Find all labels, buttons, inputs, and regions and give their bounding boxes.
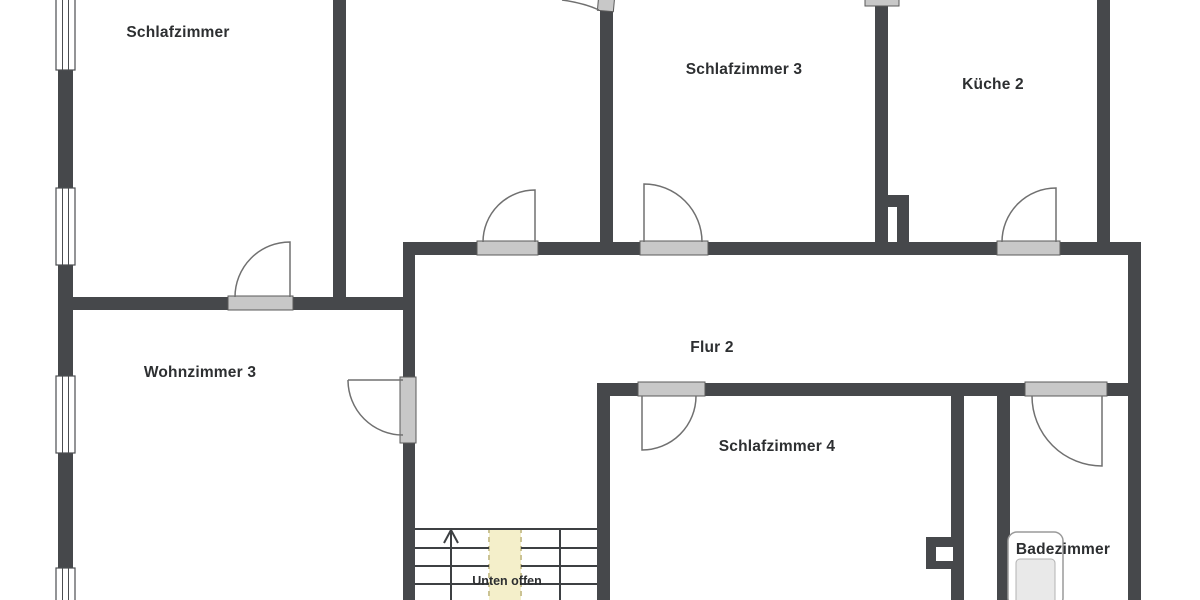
door-swing-icon <box>348 380 403 435</box>
wall-segment <box>58 297 228 310</box>
wall-segment <box>333 0 346 310</box>
door-threshold <box>638 382 705 396</box>
wall-segment <box>597 383 610 600</box>
room-label-flur-2: Flur 2 <box>690 339 733 357</box>
window-symbol <box>56 568 75 600</box>
door-swing-icon <box>483 190 535 242</box>
door-swing-icon <box>235 242 290 297</box>
wall-segment <box>951 395 964 600</box>
wall-segment <box>875 195 909 207</box>
room-label-wohnzimmer-3: Wohnzimmer 3 <box>144 364 256 382</box>
wall-segment <box>708 242 997 255</box>
door-swing-icon <box>562 0 599 10</box>
wall-segment <box>1097 0 1110 253</box>
wall-segment <box>705 383 1025 396</box>
door-swing-icon <box>642 396 696 450</box>
door-threshold <box>477 241 538 255</box>
staircase-symbol <box>415 528 597 600</box>
stair-opening <box>489 528 521 600</box>
room-label-badezimmer: Badezimmer <box>1016 541 1110 559</box>
wall-segment <box>597 383 638 396</box>
door-threshold <box>640 241 708 255</box>
door-thresholds <box>228 0 1107 443</box>
wall-segment <box>1128 243 1141 600</box>
wall-segment <box>293 297 415 310</box>
door-threshold <box>400 377 416 443</box>
wall-segment <box>538 242 640 255</box>
stairwell-label: Unten offen <box>472 574 541 588</box>
chimney-symbol <box>926 537 964 569</box>
room-label-schlafzimmer-2: Schlafzimmer 2 <box>366 0 483 5</box>
room-label-schlafzimmer-3: Schlafzimmer 3 <box>686 61 803 79</box>
floor-plan: Schlafzimmer Schlafzimmer 2 Schlafzimmer… <box>0 0 1200 600</box>
room-label-kueche-2: Küche 2 <box>962 76 1024 94</box>
window-symbol <box>56 0 75 70</box>
window-symbol <box>56 188 75 265</box>
wall-segment <box>403 443 415 600</box>
wall-segment <box>600 10 613 255</box>
door-threshold <box>1025 382 1107 396</box>
door-threshold <box>865 0 899 6</box>
wall-segment <box>1060 242 1141 255</box>
wall-segment <box>1107 383 1141 396</box>
room-label-schlafzimmer: Schlafzimmer <box>126 24 229 42</box>
wall-segment <box>875 0 888 253</box>
room-label-schlafzimmer-4: Schlafzimmer 4 <box>719 438 836 456</box>
door-threshold <box>597 0 614 12</box>
door-swing-icon <box>1002 188 1056 242</box>
door-swing-icon <box>1032 396 1102 466</box>
window-symbol <box>56 376 75 453</box>
wall-segment <box>403 242 477 255</box>
door-threshold <box>997 241 1060 255</box>
door-swing-icon <box>644 184 702 242</box>
door-threshold <box>228 296 293 310</box>
